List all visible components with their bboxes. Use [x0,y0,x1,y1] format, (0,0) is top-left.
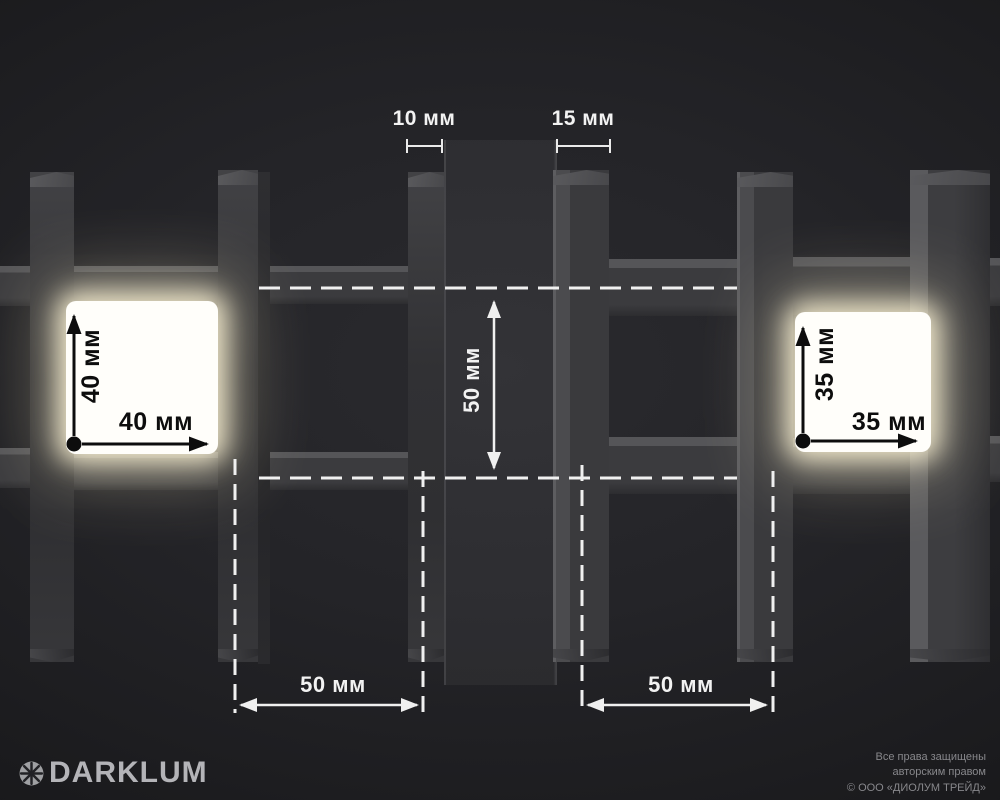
grid-post-2-side-face [258,172,270,664]
product-dimension-diagram: 10 мм 15 мм 40 мм 40 мм 35 мм 35 мм 50 м… [0,0,1000,800]
grid-rail-de-bottom [609,437,737,494]
cell-right-width-label: 35 мм [819,407,959,437]
grid-post-4-bottom-bevel [553,649,609,662]
pitch-bottom-left-label: 50 мм [263,670,403,700]
grid-post-1-top-bevel [30,172,74,187]
pitch-center-label: 50 мм [457,310,487,450]
grid-post-2-bottom-bevel [218,649,258,662]
profile-right-bracket [557,139,610,153]
grid-post-6-bottom-bevel [910,649,990,662]
grid-rail-de-top [609,259,737,316]
pitch-bottom-right-label: 50 мм [611,670,751,700]
brand-logo-text: DARKLUM [49,756,208,790]
grid-rail-left-edge-bottom [0,448,32,488]
grid-post-4 [553,170,609,662]
grid-post-5-bottom-bevel [737,649,793,662]
grid-post-5-top-bevel [737,172,793,187]
grid-rail-ab-bottom [70,452,218,490]
cell-left-width-label: 40 мм [86,407,226,437]
grid-post-5 [737,172,793,662]
grid-post-6-top-bevel [910,170,990,185]
grid-post-3 [408,172,444,662]
copyright-line-2: авторским правом [847,765,986,780]
profile-left-label: 10 мм [354,104,494,134]
sunburst-logo-icon [18,760,45,787]
grid-post-4-top-bevel [553,170,609,185]
grid-rail-bc-bottom [258,452,408,490]
grid-post-2-top-bevel [218,170,258,185]
grid-post-3-top-bevel [408,172,444,187]
copyright-notice: Все права защищены авторским правом © ОО… [847,750,986,796]
profile-right-label: 15 мм [513,104,653,134]
profile-left-bracket [407,139,442,153]
grid-post-1-bottom-bevel [30,649,74,662]
grid-post-3-bottom-bevel [408,649,444,662]
copyright-line-1: Все права защищены [847,750,986,765]
brand-logo: DARKLUM [18,756,208,790]
grid-rail-left-edge-top [0,266,32,306]
copyright-line-3: © ООО «ДИОЛУМ ТРЕЙД» [847,781,986,796]
grid-rail-bc-top [258,266,408,304]
